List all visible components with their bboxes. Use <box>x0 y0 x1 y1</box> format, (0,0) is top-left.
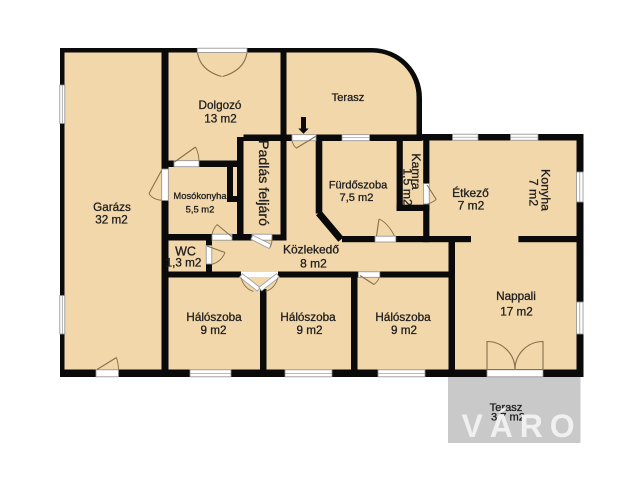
svg-text:Terasz: Terasz <box>332 92 365 104</box>
svg-text:1,5 m2: 1,5 m2 <box>401 168 415 206</box>
svg-text:9 m2: 9 m2 <box>201 324 227 337</box>
svg-text:Fürdőszoba: Fürdőszoba <box>329 180 388 192</box>
svg-text:Hálószoba: Hálószoba <box>280 311 336 324</box>
svg-text:Hálószoba: Hálószoba <box>186 311 242 324</box>
svg-text:7 m2: 7 m2 <box>458 199 485 213</box>
svg-text:7,5 m2: 7,5 m2 <box>340 192 374 204</box>
svg-text:Közlekedő: Közlekedő <box>283 243 339 257</box>
svg-text:Padlás feljáró: Padlás feljáró <box>255 140 271 226</box>
svg-text:Dolgozó: Dolgozó <box>199 99 242 112</box>
svg-text:Mosókonyha: Mosókonyha <box>173 190 227 201</box>
svg-text:17 m2: 17 m2 <box>500 306 532 319</box>
svg-text:7 m2: 7 m2 <box>527 179 541 207</box>
svg-text:5,5 m2: 5,5 m2 <box>186 204 215 215</box>
svg-text:9 m2: 9 m2 <box>391 324 417 337</box>
svg-text:32 m2: 32 m2 <box>95 214 127 227</box>
svg-text:13 m2: 13 m2 <box>204 113 236 126</box>
svg-text:8 m2: 8 m2 <box>300 257 327 271</box>
svg-text:9 m2: 9 m2 <box>297 324 323 337</box>
svg-text:Nappali: Nappali <box>496 290 536 303</box>
svg-text:1,3 m2: 1,3 m2 <box>166 257 202 270</box>
svg-text:Garázs: Garázs <box>93 201 131 214</box>
svg-text:Hálószoba: Hálószoba <box>375 311 431 324</box>
